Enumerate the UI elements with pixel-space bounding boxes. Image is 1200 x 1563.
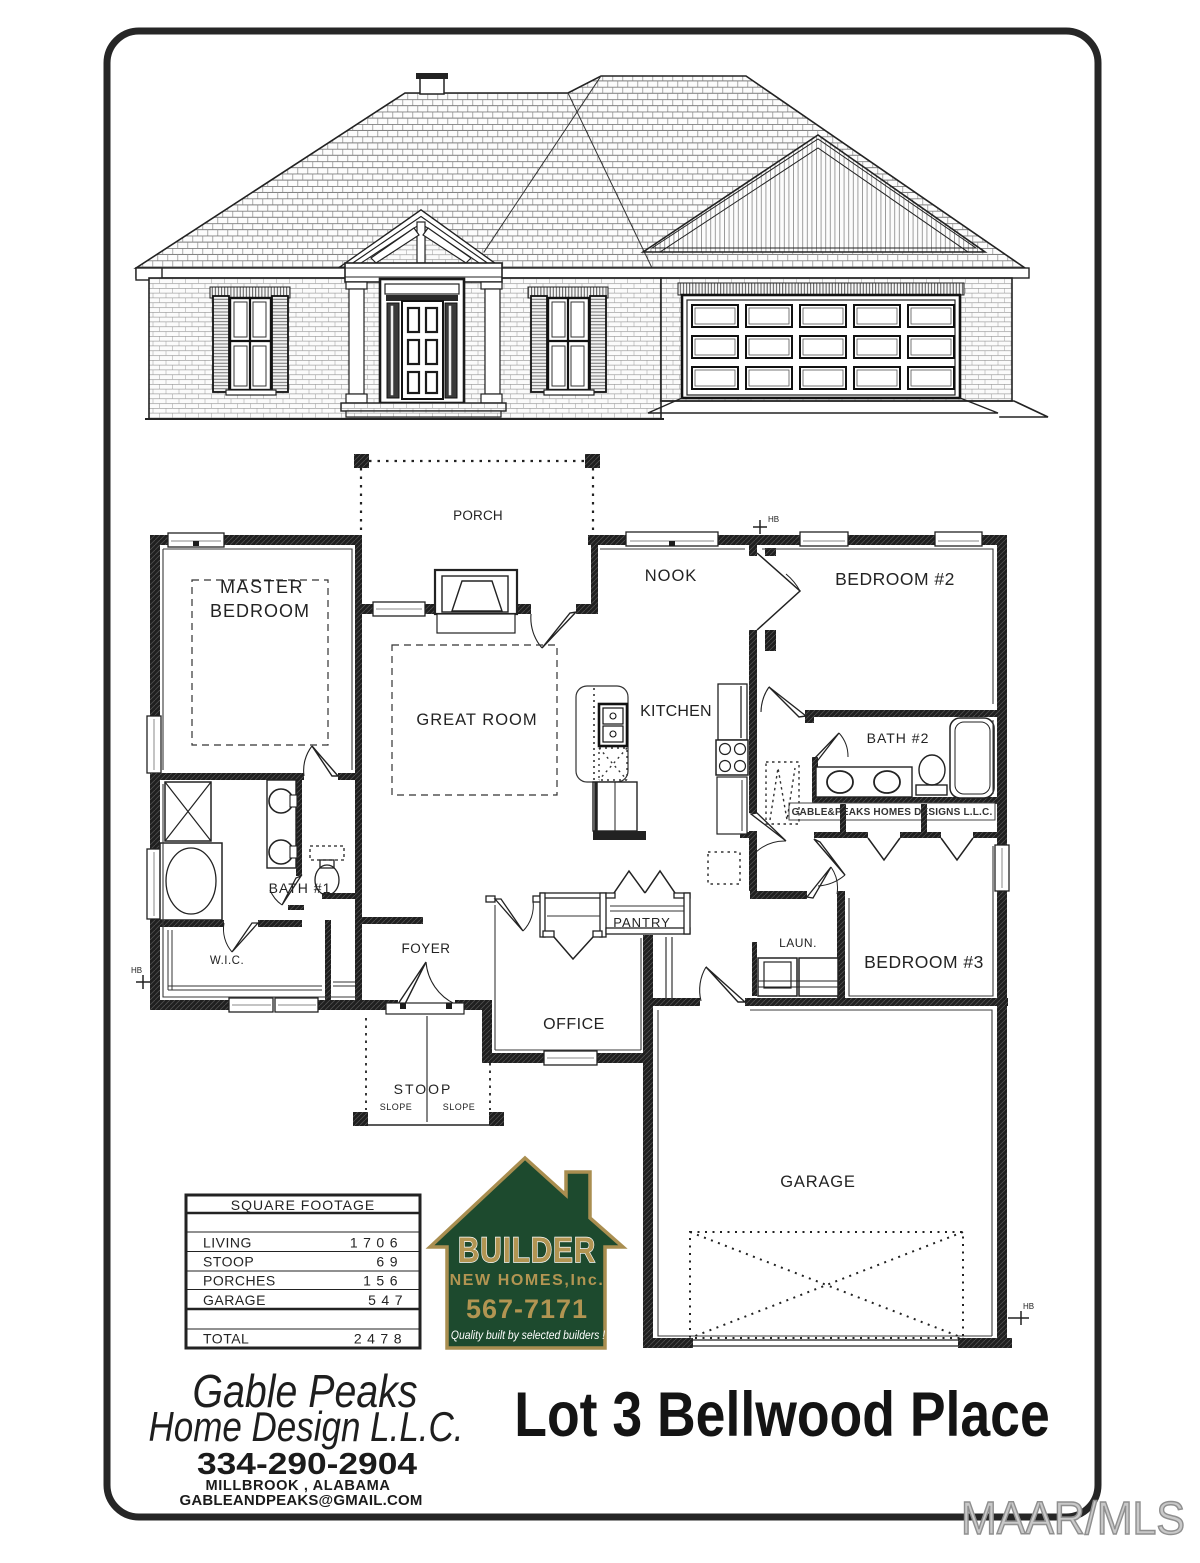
svg-text:SQUARE FOOTAGE: SQUARE FOOTAGE [231, 1197, 375, 1213]
svg-text:STOOP: STOOP [203, 1254, 254, 1270]
svg-text:HB: HB [1023, 1302, 1034, 1311]
svg-text:334-290-2904: 334-290-2904 [197, 1446, 418, 1481]
svg-text:STOOP: STOOP [394, 1081, 453, 1097]
svg-text:PANTRY: PANTRY [613, 915, 671, 930]
svg-text:BATH #2: BATH #2 [867, 730, 930, 746]
svg-text:MILLBROOK , ALABAMA: MILLBROOK , ALABAMA [206, 1478, 391, 1494]
svg-text:OFFICE: OFFICE [543, 1016, 605, 1033]
svg-text:TOTAL: TOTAL [203, 1331, 249, 1347]
svg-text:MASTER: MASTER [220, 577, 304, 597]
svg-text:MAAR/MLS: MAAR/MLS [961, 1492, 1185, 1544]
svg-text:HB: HB [131, 966, 142, 975]
svg-text:HB: HB [768, 515, 779, 524]
svg-text:SLOPE: SLOPE [380, 1102, 413, 1112]
svg-text:LIVING: LIVING [203, 1235, 252, 1251]
svg-text:GABLEANDPEAKS@GMAIL.COM: GABLEANDPEAKS@GMAIL.COM [180, 1493, 423, 1509]
svg-text:BATH #1: BATH #1 [269, 880, 332, 896]
svg-text:BEDROOM #2: BEDROOM #2 [835, 569, 955, 589]
svg-text:Lot 3 Bellwood Place: Lot 3 Bellwood Place [514, 1380, 1049, 1450]
svg-text:NEW HOMES,Inc.: NEW HOMES,Inc. [450, 1272, 605, 1289]
svg-text:Quality built by selected buil: Quality built by selected builders ! [451, 1330, 605, 1343]
svg-text:GARAGE: GARAGE [780, 1173, 855, 1191]
svg-text:547: 547 [368, 1292, 408, 1308]
svg-text:FOYER: FOYER [401, 941, 450, 956]
svg-text:LAUN.: LAUN. [779, 936, 817, 950]
svg-text:156: 156 [363, 1273, 403, 1289]
svg-text:GARAGE: GARAGE [203, 1292, 266, 1308]
svg-text:GABLE&PEAKS HOMES DESIGNS L.L.: GABLE&PEAKS HOMES DESIGNS L.L.C. [792, 807, 993, 818]
svg-text:BEDROOM: BEDROOM [210, 601, 310, 621]
svg-text:69: 69 [376, 1254, 403, 1270]
svg-text:GREAT ROOM: GREAT ROOM [416, 711, 537, 729]
svg-text:1706: 1706 [350, 1235, 403, 1251]
svg-text:BUILDER: BUILDER [458, 1231, 596, 1270]
svg-text:2478: 2478 [354, 1331, 407, 1347]
svg-text:NOOK: NOOK [645, 567, 698, 585]
svg-text:Home Design L.L.C.: Home Design L.L.C. [149, 1403, 464, 1450]
svg-text:KITCHEN: KITCHEN [640, 703, 712, 720]
svg-text:567-7171: 567-7171 [466, 1294, 588, 1324]
svg-text:SLOPE: SLOPE [443, 1102, 476, 1112]
svg-text:PORCH: PORCH [453, 508, 503, 523]
svg-text:PORCHES: PORCHES [203, 1273, 276, 1289]
svg-text:BEDROOM #3: BEDROOM #3 [864, 952, 984, 972]
svg-text:W.I.C.: W.I.C. [210, 955, 244, 967]
